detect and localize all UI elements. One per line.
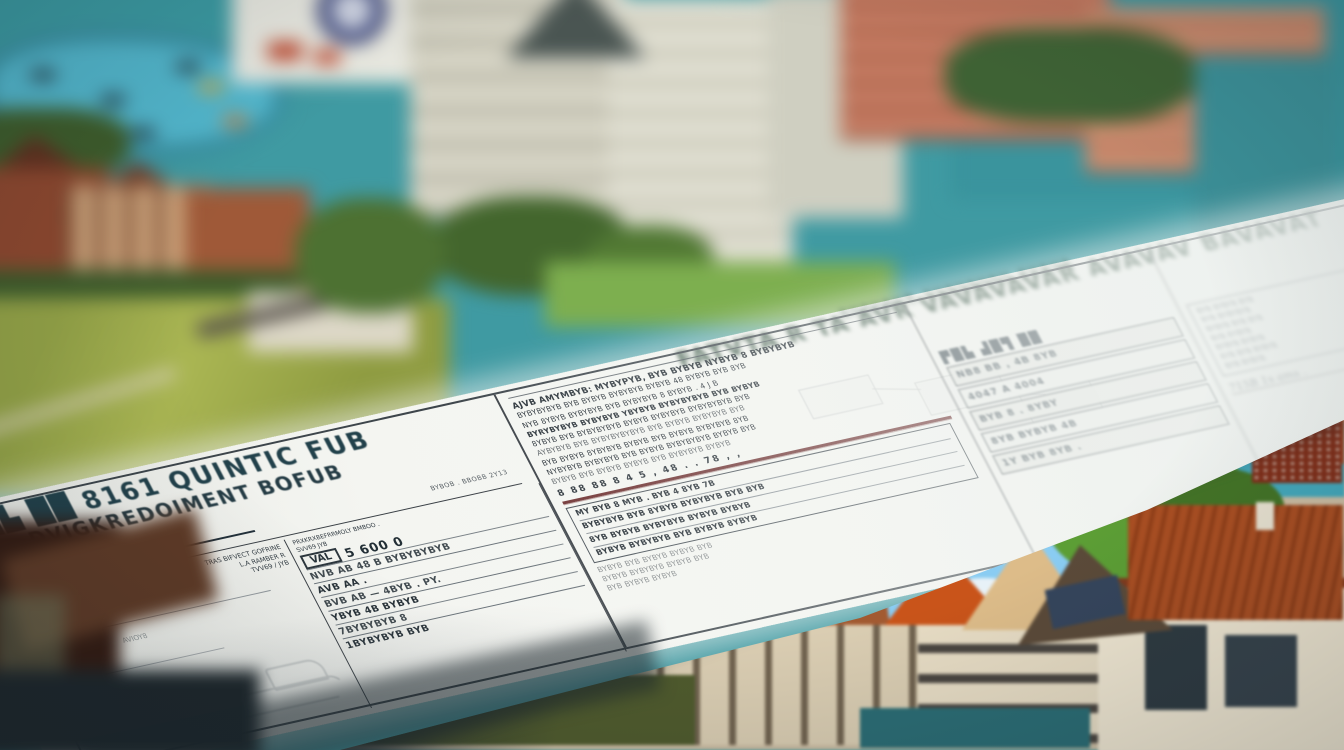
boat-orange [222,116,248,126]
trees [945,28,1195,123]
far-box: BYB BYBYB BYB8YB BYBYBYBBYBYB BYB BYBBYB… [1186,262,1344,376]
blank-field-line [78,647,225,680]
faint-label: TAMERY BL [110,691,152,707]
red-awning [314,50,340,64]
window [1145,625,1207,710]
window [1225,635,1297,707]
boat [30,70,56,80]
boat [130,128,156,138]
ghost-boat-sketch [178,650,357,729]
boat [175,62,201,72]
signature-note: BYBOB . BBOBB 2Y13 [429,468,509,492]
chimney [1256,502,1274,530]
signature: auto [17,547,91,589]
teal-water-bottom [860,708,1090,748]
red-awning [268,42,302,60]
faint-label: AVIOY8 [121,632,149,645]
rust-hip-roof [1128,505,1343,620]
photo-scene: AVAVAVR AVAVAVAV AVAVA FATVTA R TA AVR V… [0,0,1344,750]
blank-field-line [85,590,271,632]
boat [100,95,126,105]
trees [295,198,445,313]
boat-yellow [198,82,224,92]
